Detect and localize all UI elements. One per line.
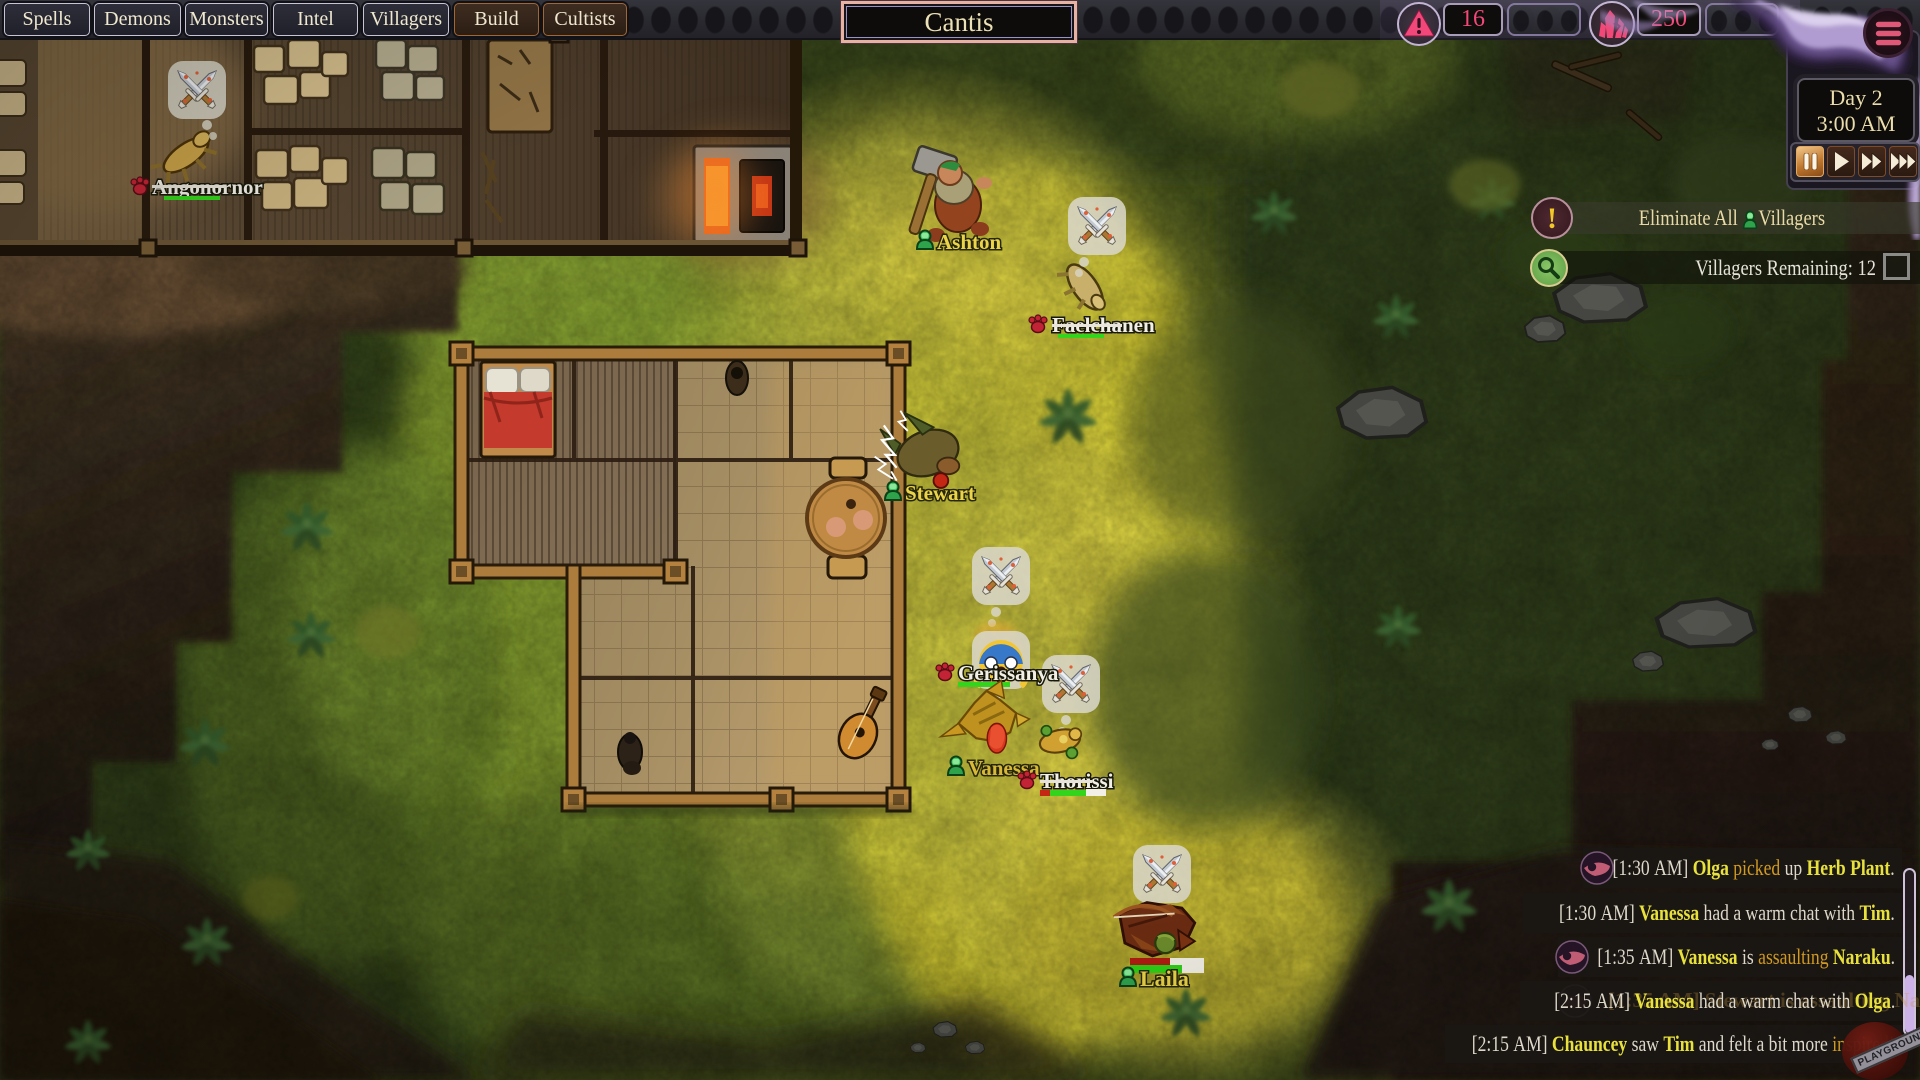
svg-text:Stewart: Stewart (905, 481, 975, 505)
svg-text:Ashton: Ashton (937, 230, 1002, 254)
svg-text:Gerissanya: Gerissanya (958, 661, 1059, 685)
svg-text:Laila: Laila (1140, 966, 1189, 991)
